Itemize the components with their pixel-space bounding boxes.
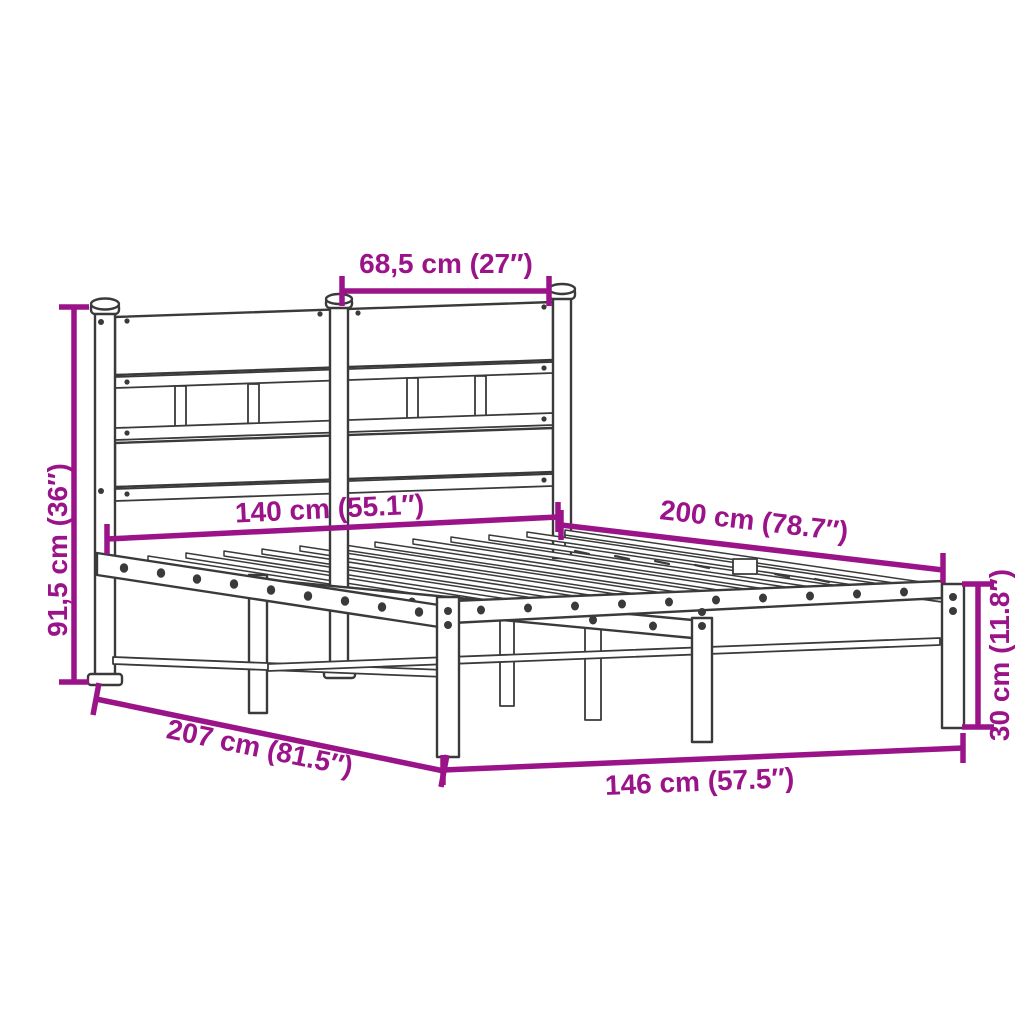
corner-leg-far [942,584,964,728]
dimension-label-headboard-height: 91,5 cm (36″) [42,463,73,637]
headboard-spacer [248,384,259,425]
dimension-headboard-section-width: 68,5 cm (27″) [342,248,549,306]
post-foot [88,674,122,685]
cross-brace [268,638,940,671]
dimension-headboard-height: 91,5 cm (36″) [42,307,89,682]
dimension-diagram: 68,5 cm (27″) 91,5 cm (36″) 140 cm (55.1… [0,0,1024,1024]
dimension-total-length: 207 cm (81.5″) [93,683,447,787]
dimension-label-total-length: 207 cm (81.5″) [164,713,356,782]
bed-dimension-svg: 68,5 cm (27″) 91,5 cm (36″) 140 cm (55.1… [0,0,1024,1024]
dimension-label-frame-height: 30 cm (11.8″) [984,569,1015,741]
mattress-stop-bracket [733,559,757,574]
center-foot-leg [692,608,712,742]
support-leg [500,620,514,706]
corner-leg-near [437,597,459,757]
headboard-spacer [475,376,486,417]
dimension-frame-height: 30 cm (11.8″) [962,569,1015,741]
headboard-spacer [175,386,186,427]
dimension-label-headboard-section-width: 68,5 cm (27″) [359,248,533,279]
dimension-label-total-width: 146 cm (57.5″) [604,762,794,801]
headboard-spacer [407,378,418,419]
